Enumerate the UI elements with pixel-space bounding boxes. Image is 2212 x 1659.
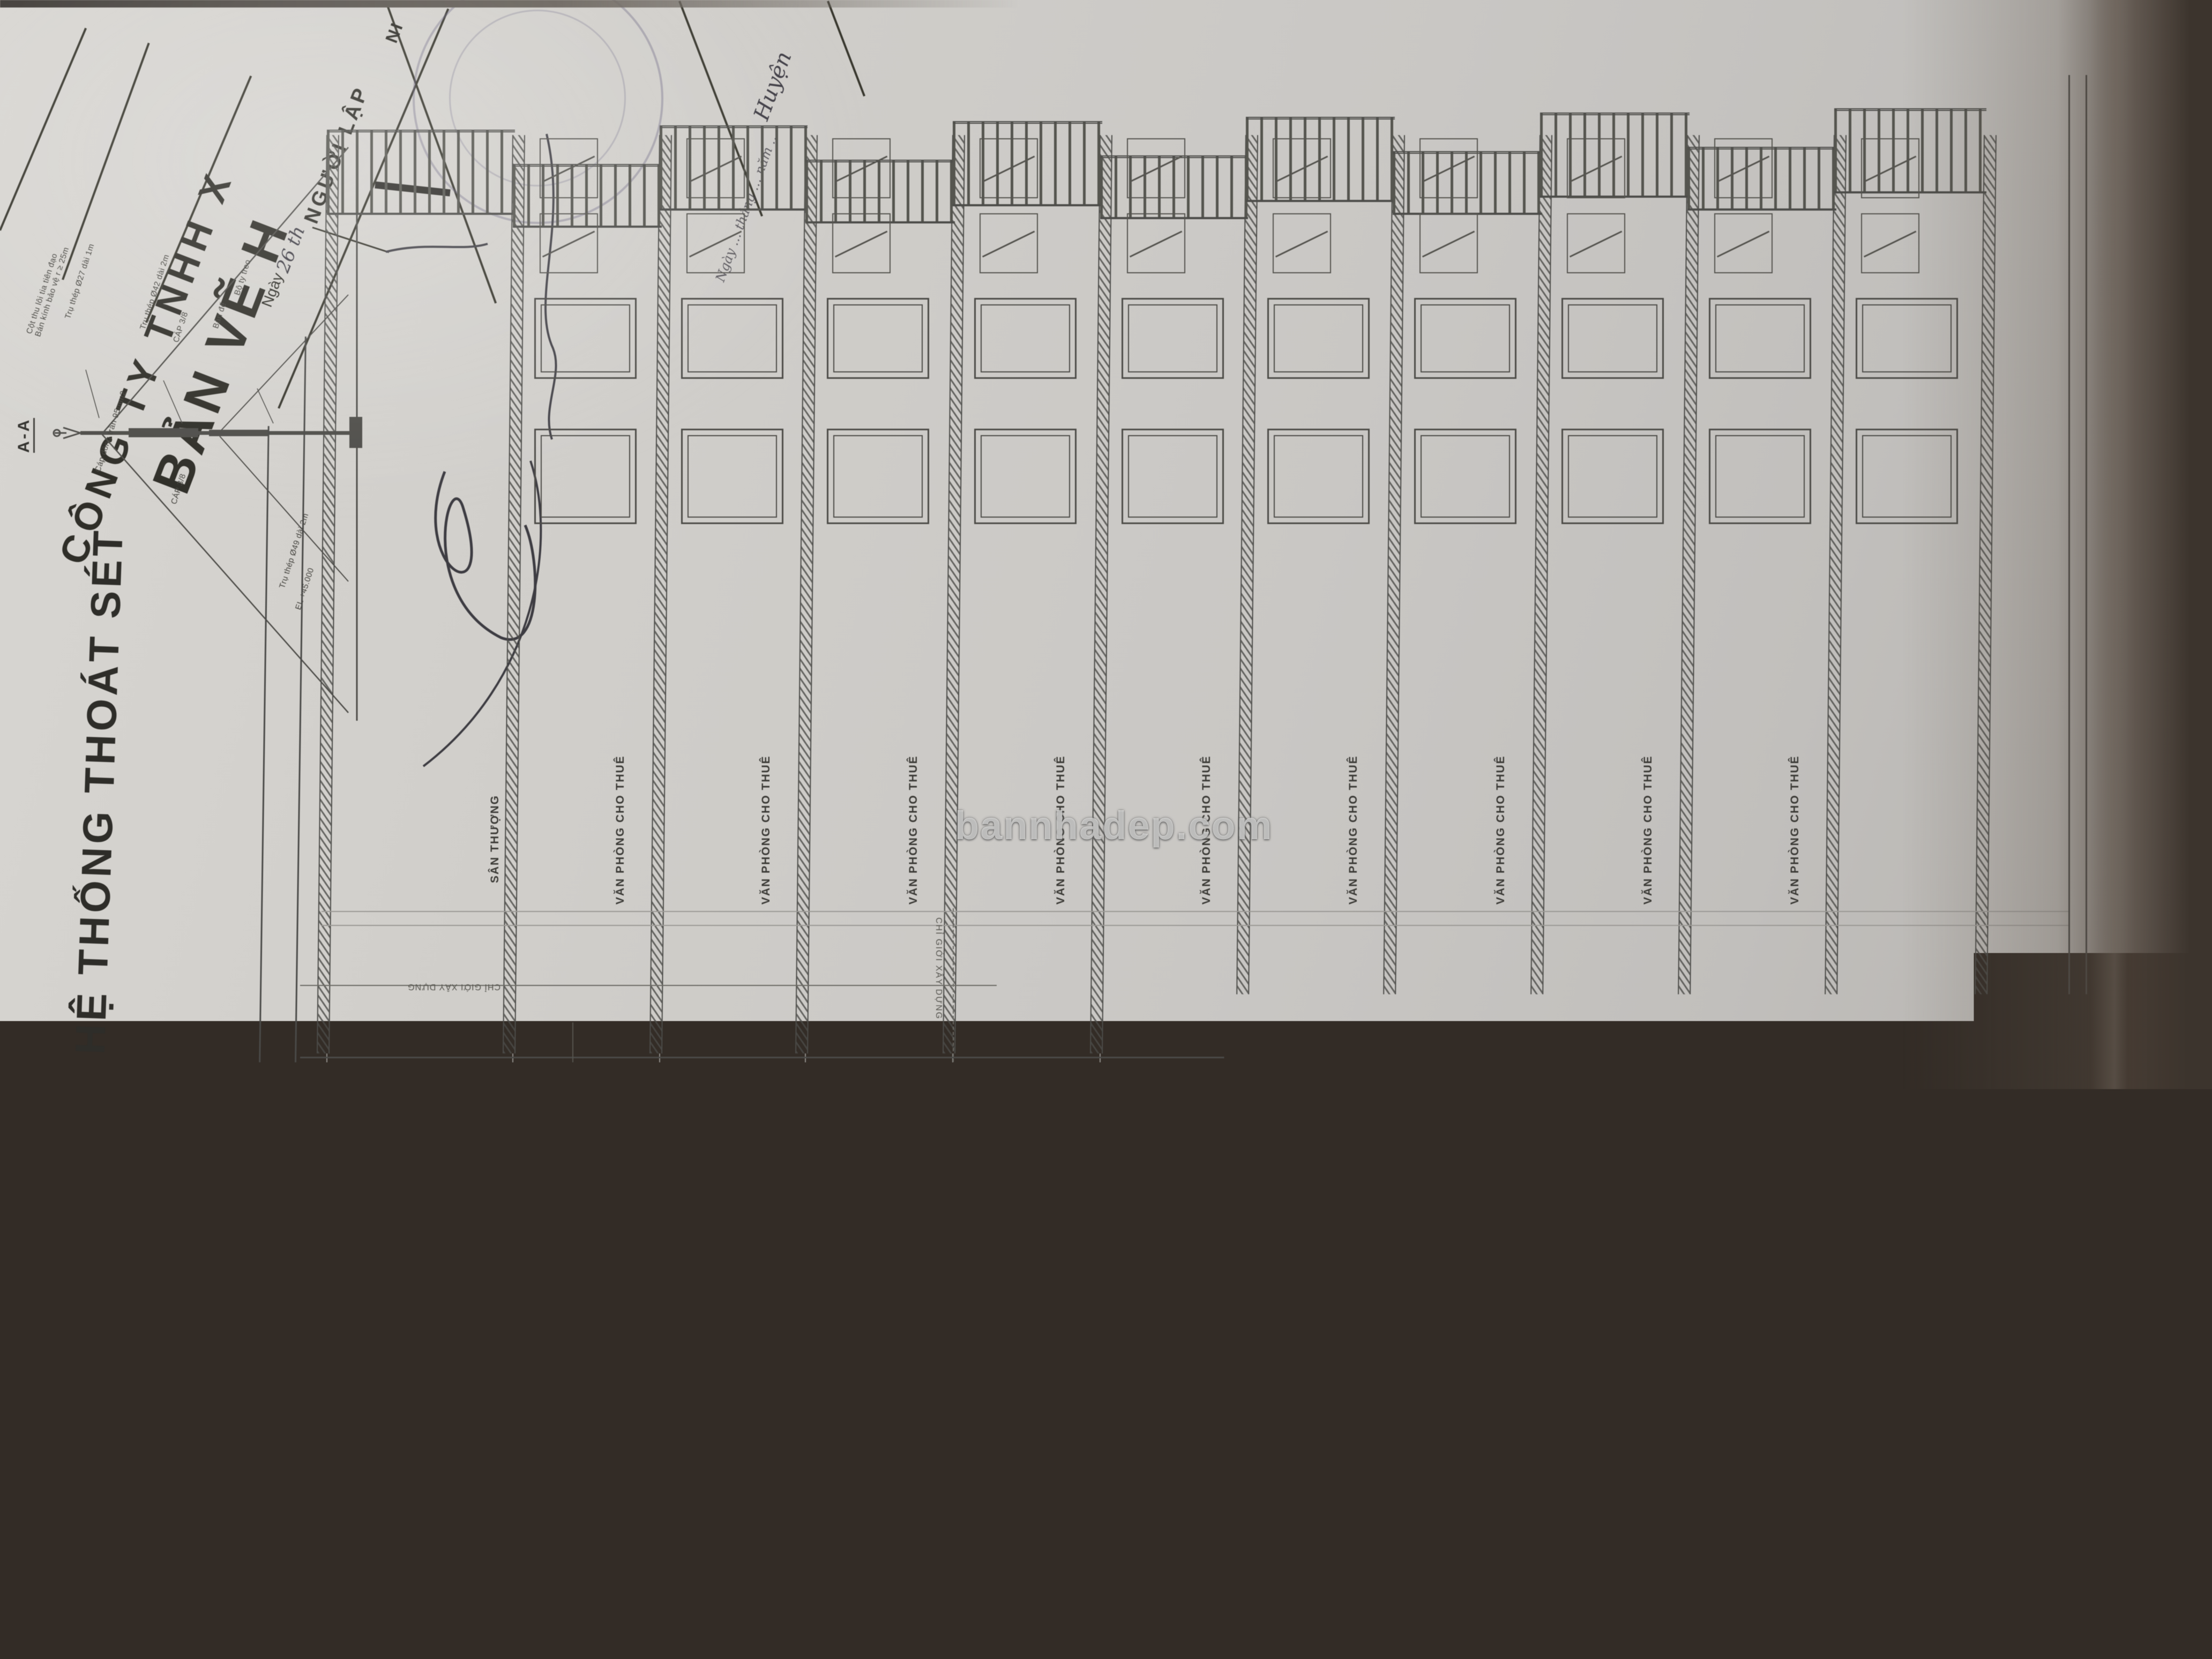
- strip-window: [1414, 298, 1516, 379]
- construction-boundary-label: CHỈ GIỚI XÂY DỰNG: [324, 982, 500, 991]
- louver-window: [1714, 213, 1773, 273]
- floor-label-bracket: [808, 1359, 809, 1446]
- strip-window: [1709, 429, 1811, 524]
- floor-label-bracket: [350, 1359, 351, 1446]
- strip-window: [827, 429, 929, 524]
- slab-band: [649, 135, 672, 1053]
- floor-label: EL +45.000: [291, 1401, 302, 1448]
- slab-band-tail: [1392, 1053, 1393, 1324]
- slab-band-tail: [1834, 1053, 1835, 1324]
- floor-label-bracket: [961, 1359, 962, 1446]
- strip-window: [1709, 298, 1811, 379]
- setback-dimension: 6000: [367, 1089, 383, 1120]
- floor-label: TẦNG KỸ THUẬTEL +40.550: [481, 1373, 503, 1448]
- slab-band: [1090, 135, 1112, 1053]
- louver-window: [1127, 213, 1185, 273]
- sidewalk-line: [300, 1057, 2079, 1058]
- ground-line: [2068, 75, 2070, 1329]
- floor-label-bracket: [503, 1359, 504, 1446]
- louver-window: [1861, 213, 1919, 273]
- dimension-value: 3600: [1029, 1328, 1048, 1338]
- fire-callout-leader: [1960, 80, 1961, 126]
- construction-boundary-label-vertical: CHỈ GIỚI XÂY DỰNG: [933, 917, 943, 1020]
- strip-window: [1267, 298, 1370, 379]
- office-label: VĂN PHÒNG CHO THUÊ: [1642, 755, 1655, 905]
- louver-window: [1567, 138, 1625, 198]
- strip-window: [1856, 429, 1958, 524]
- ground-line: [2086, 75, 2087, 1329]
- strip-window: [534, 429, 637, 524]
- floor-label: TẦNG 10EL +36.950: [634, 1401, 655, 1448]
- slab-band-tail: [326, 1053, 327, 1324]
- office-label: VĂN PHÒNG CHO THUÊ: [614, 755, 627, 905]
- facade-base-line: [322, 925, 2068, 926]
- louver-window: [980, 213, 1038, 273]
- floor-label: MÁIEL +44.150: [328, 1401, 350, 1448]
- louver-window: [1714, 138, 1773, 198]
- louver-window: [686, 213, 745, 273]
- fire-callout: Thang sắt thoát lên mái: [2005, 0, 2037, 6]
- office-label: VĂN PHÒNG CHO THUÊ: [1789, 755, 1802, 905]
- dimension-value: 3600: [1793, 1328, 1811, 1338]
- floor-label-bracket: [1419, 1359, 1420, 1446]
- slab-band: [1236, 135, 1258, 1053]
- watermark-corner: bannhadep.com: [1671, 1571, 1966, 1614]
- dimension-value: 3600: [419, 1328, 437, 1338]
- slab-band: [943, 135, 965, 1053]
- floor-label: TẦNG 3EL +11.750: [1703, 1401, 1724, 1448]
- floor-label: TẦNG 5EL +18.950: [1398, 1401, 1419, 1448]
- floor-label: TẦNG 2EL +8.150: [1856, 1406, 1877, 1448]
- road-line: [252, 1259, 2093, 1260]
- louver-window: [1861, 138, 1919, 198]
- dimension-value: 3600: [571, 1328, 589, 1338]
- office-label: VĂN PHÒNG CHO THUÊ: [907, 755, 920, 905]
- louver-window: [832, 138, 891, 198]
- canopy-ground: [616, 1212, 772, 1214]
- fire-callout-leader: [2009, 80, 2011, 126]
- louver-window: [1419, 213, 1478, 273]
- louver-window: [540, 138, 598, 198]
- sidewalk-line: [300, 1070, 2079, 1071]
- slab-band: [1677, 135, 1700, 1053]
- slab-band: [795, 135, 818, 1053]
- strip-window: [1561, 298, 1664, 379]
- slab-band-tail: [1100, 1053, 1101, 1324]
- strip-window: [1856, 298, 1958, 379]
- louver-window: [1567, 213, 1625, 273]
- road-line: [252, 1210, 2093, 1212]
- slab-band-tail: [1540, 1053, 1541, 1324]
- strip-window: [1122, 298, 1224, 379]
- dimension-value: 3600: [1182, 1328, 1200, 1338]
- floor-label-bracket: [1877, 1359, 1878, 1446]
- floor-label-bracket: [312, 1359, 313, 1446]
- floor-label-bracket: [2030, 1359, 2031, 1446]
- slab-band: [1382, 135, 1405, 1053]
- louver-window: [832, 213, 891, 273]
- strip-window: [974, 429, 1077, 524]
- floor-label: TẦNG 4EL +15.350: [1550, 1401, 1572, 1448]
- strip-window: [1267, 429, 1370, 524]
- title-block-border: [827, 1, 865, 96]
- floor-label: LỬNGEL +4.550: [2008, 1406, 2030, 1448]
- louver-window: [1273, 213, 1331, 273]
- louver-window: [1419, 138, 1478, 198]
- road-boundary-label: RANH LỘ GIỚI: [294, 1198, 370, 1209]
- slab-band: [1824, 135, 1847, 1053]
- handwritten-district: Huyện: [749, 48, 797, 123]
- entry-dimension: 1400: [554, 1124, 571, 1157]
- slab-band-tail: [1984, 1053, 1985, 1324]
- slab-band-tail: [1245, 1053, 1246, 1324]
- dimension-value: 3600: [1488, 1328, 1506, 1338]
- dimension-value: 3600: [877, 1328, 895, 1338]
- strip-window: [681, 429, 783, 524]
- strip-window: [1414, 429, 1516, 524]
- floor-label: TẦNG 7EL +26.150: [1092, 1401, 1114, 1448]
- floor-label-bracket: [1572, 1359, 1573, 1446]
- railing-segment: [327, 130, 515, 215]
- floor-label: TẦNG 6EL +22.550: [1245, 1401, 1266, 1448]
- fire-callout: Cửa chống cháy(giới hạn khu thuê): [1956, 0, 1992, 9]
- canopy-slab: [631, 1184, 769, 1213]
- facade-base-line: [322, 911, 2068, 912]
- floor-label-bracket: [655, 1359, 656, 1446]
- strip-window: [1122, 429, 1224, 524]
- slab-band-tail: [1687, 1053, 1688, 1324]
- strip-window: [827, 298, 929, 379]
- strip-window: [1561, 429, 1664, 524]
- slab-band: [1974, 135, 1997, 1053]
- dimension-value: 3600: [1946, 1328, 1964, 1338]
- dimension-value: 850: [325, 1329, 339, 1339]
- fire-callout: Tường ngăn cháy(giới hạn khu thuê): [1912, 0, 1948, 9]
- floor-label: TẦNG 8EL +29.750: [939, 1401, 961, 1448]
- photo-of-blueprint: CÔNG TY TNHH X BẢN VẼ H Ngày 26 th NGƯỜI…: [0, 0, 2212, 1659]
- strip-window: [681, 298, 783, 379]
- construction-boundary-line: [953, 908, 954, 1589]
- slab-band-tail: [805, 1053, 806, 1324]
- office-label: VĂN PHÒNG CHO THUÊ: [760, 755, 773, 905]
- paper-top-edge: [0, 0, 1018, 8]
- floor-label-bracket: [1724, 1359, 1725, 1446]
- louver-window: [1127, 138, 1185, 198]
- office-label: VĂN PHÒNG CHO THUÊ: [1494, 755, 1507, 905]
- watermark-center: bannhadep.com: [955, 803, 1273, 848]
- dimension-value: 3600: [1335, 1328, 1353, 1338]
- fire-callout-leader: [1916, 80, 1917, 126]
- slab-band: [1530, 135, 1552, 1053]
- section-mark: A-A: [15, 418, 35, 453]
- louver-window: [980, 138, 1038, 198]
- louver-window: [540, 213, 598, 273]
- dimension-value: 3600: [724, 1328, 742, 1338]
- road-line: [252, 1225, 2093, 1227]
- strip-window: [974, 298, 1077, 379]
- floor-label-bracket: [1114, 1359, 1115, 1446]
- floor-label-bracket: [1266, 1359, 1267, 1446]
- terrace-label: SÂN THƯỢNG: [489, 795, 502, 883]
- dimension-chain: [303, 1324, 2093, 1325]
- strip-window: [534, 298, 637, 379]
- office-label: VĂN PHÒNG CHO THUÊ: [1347, 755, 1360, 905]
- louver-window: [686, 138, 745, 198]
- dimension-value: 3600: [1640, 1328, 1658, 1338]
- louver-window: [1273, 138, 1331, 198]
- slab-band-tail: [512, 1053, 513, 1324]
- entry-dim-line: [572, 1022, 573, 1159]
- floor-label: TẦNG 9EL +33.350: [787, 1401, 808, 1448]
